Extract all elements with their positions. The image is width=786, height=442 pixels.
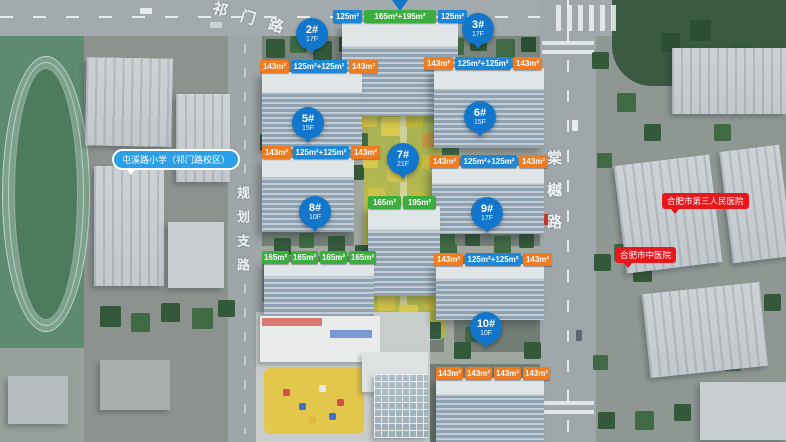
east-building — [700, 382, 786, 440]
building-pin-5[interactable]: 5# 15F — [292, 107, 324, 143]
road-name-left: 规划支路 — [233, 186, 252, 282]
pin-floor-count: 15F — [474, 119, 486, 127]
pin-tail — [470, 38, 486, 49]
car — [210, 22, 222, 28]
pin-1-tip — [392, 0, 408, 11]
unit-area-label: 165m² — [291, 251, 318, 264]
car — [576, 330, 582, 341]
unit-area-label: 125m²+125m² — [455, 57, 511, 70]
building-pin-7[interactable]: 7# 21F — [387, 143, 419, 179]
pin-building-number: 9# — [481, 204, 493, 215]
pin-floor-count: 10F — [480, 330, 492, 338]
building-pin-3[interactable]: 3# 17F — [462, 13, 494, 49]
unit-area-label: 143m² — [351, 146, 380, 159]
pin-tail — [472, 126, 488, 137]
pin-tail — [300, 132, 316, 143]
pin-building-number: 5# — [302, 114, 314, 125]
pin-floor-count: 17F — [472, 31, 484, 39]
school-building — [94, 166, 164, 286]
school-building — [168, 222, 224, 288]
building-pin-10[interactable]: 10# 10F — [470, 312, 502, 348]
unit-area-label: 143m² — [465, 367, 492, 380]
site-path — [430, 352, 546, 364]
unit-area-label: 143m² — [260, 60, 289, 73]
east-building — [642, 282, 768, 378]
kindergarten-playground — [264, 368, 364, 434]
pin-tail — [479, 222, 495, 233]
poi-bubble-hospital-third: 合肥市第三人民医院 — [662, 193, 749, 209]
unit-area-label: 143m² — [424, 57, 453, 70]
building-pin-6[interactable]: 6# 15F — [464, 101, 496, 137]
pin-building-number: 8# — [309, 203, 321, 214]
unit-area-label: 143m² — [262, 146, 291, 159]
pin-tail — [304, 43, 320, 54]
glass-roof-building — [374, 374, 428, 438]
unit-area-label: 195m² — [403, 196, 436, 209]
car — [572, 120, 578, 131]
aerial-site-map: 125m² 165m²+195m² 125m² 143m² 125m²+125m… — [0, 0, 786, 442]
tower-10 — [436, 378, 544, 442]
tower-8 — [264, 262, 374, 316]
unit-area-label: 125m² — [333, 10, 362, 23]
unit-area-label: 165m² — [349, 251, 376, 264]
unit-area-label: 125m²+125m² — [461, 155, 517, 168]
pin-building-number: 7# — [397, 150, 409, 161]
crosswalk — [542, 38, 594, 54]
track-infield — [14, 68, 78, 320]
pin-tail — [395, 168, 411, 179]
building-pin-8[interactable]: 8# 10F — [299, 196, 331, 232]
building-pin-9[interactable]: 9# 17F — [471, 197, 503, 233]
unit-area-label: 125m²+125m² — [291, 60, 347, 73]
unit-area-label: 165m²+195m² — [364, 10, 436, 23]
pin-floor-count: 17F — [306, 36, 318, 44]
low-building — [100, 360, 170, 410]
tower-7 — [368, 206, 440, 296]
school-building — [85, 57, 173, 146]
unit-area-label: 143m² — [513, 57, 542, 70]
pin-building-number: 3# — [472, 20, 484, 31]
east-building — [672, 48, 786, 114]
unit-area-label: 143m² — [523, 253, 552, 266]
low-building — [8, 376, 68, 424]
kindergarten-roof-stripe — [330, 330, 372, 338]
unit-area-label: 125m²+125m² — [465, 253, 521, 266]
pin-floor-count: 17F — [481, 215, 493, 223]
pin-building-number: 6# — [474, 108, 486, 119]
pin-building-number: 10# — [477, 319, 495, 330]
crosswalk — [542, 398, 594, 414]
pin-floor-count: 21F — [397, 161, 409, 169]
unit-area-label: 165m² — [320, 251, 347, 264]
unit-area-label: 143m² — [494, 367, 521, 380]
poi-bubble-hospital-tcm: 合肥市中医院 — [615, 247, 676, 263]
unit-area-label: 143m² — [523, 367, 550, 380]
unit-area-label: 143m² — [436, 367, 463, 380]
car — [140, 8, 152, 14]
unit-area-label: 143m² — [349, 60, 378, 73]
unit-area-label: 165m² — [262, 251, 289, 264]
unit-area-label: 125m²+125m² — [293, 146, 349, 159]
lane-line — [567, 0, 569, 442]
unit-area-label: 165m² — [368, 196, 401, 209]
playground-balls — [0, 0, 1, 1]
pin-floor-count: 10F — [309, 214, 321, 222]
unit-area-label: 143m² — [430, 155, 459, 168]
pin-tail — [478, 337, 494, 348]
pin-tail — [307, 221, 323, 232]
pin-building-number: 2# — [306, 25, 318, 36]
running-track — [2, 56, 90, 332]
building-pin-2[interactable]: 2# 17F — [296, 18, 328, 54]
kindergarten-roof-stripe — [262, 318, 322, 326]
crosswalk — [556, 5, 622, 31]
unit-area-label: 143m² — [519, 155, 548, 168]
unit-area-label: 143m² — [434, 253, 463, 266]
pin-floor-count: 15F — [302, 125, 314, 133]
poi-bubble-school: 屯溪路小学（祁门路校区） — [112, 149, 240, 170]
